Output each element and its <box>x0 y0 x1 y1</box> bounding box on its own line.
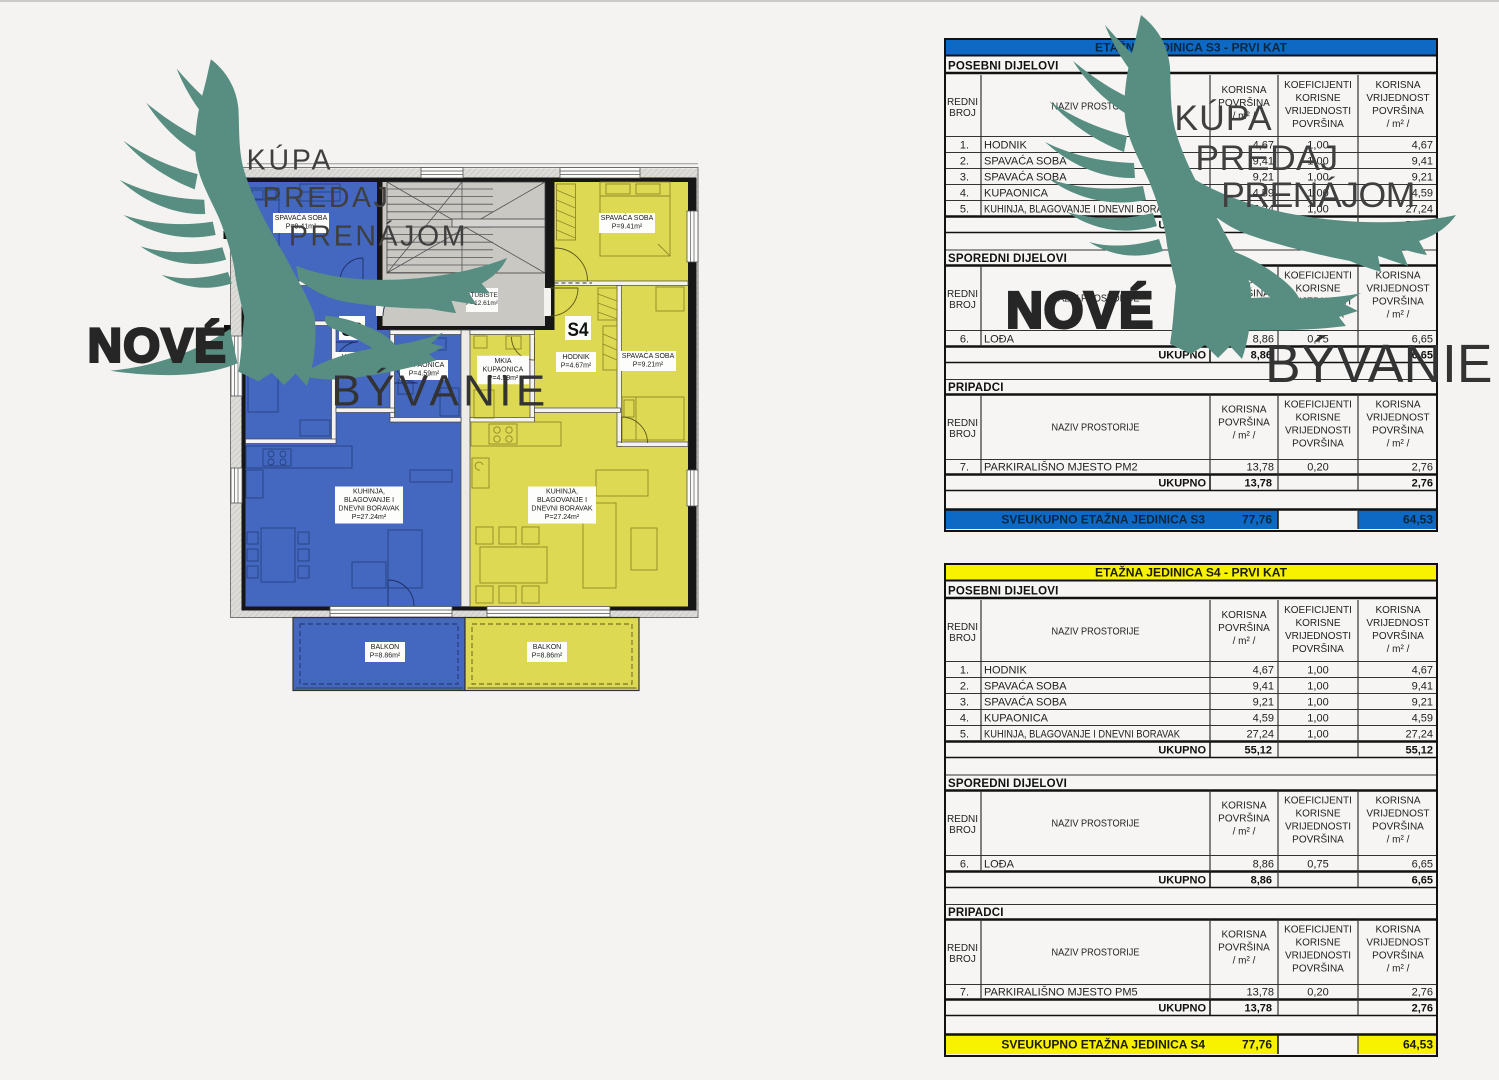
svg-text:PRENÁJOM: PRENÁJOM <box>1221 175 1415 215</box>
svg-text:KÚPA: KÚPA <box>1174 98 1272 138</box>
svg-text:PRENÁJOM: PRENÁJOM <box>289 221 468 253</box>
svg-text:PREDAJ: PREDAJ <box>262 182 390 214</box>
svg-text:BÝVANIE: BÝVANIE <box>331 367 549 416</box>
svg-text:KÚPA: KÚPA <box>247 145 334 177</box>
svg-text:NOVÉ: NOVÉ <box>1006 282 1154 339</box>
svg-text:PREDAJ: PREDAJ <box>1195 138 1338 178</box>
svg-text:BÝVANIE: BÝVANIE <box>1265 335 1492 394</box>
svg-text:NOVÉ: NOVÉ <box>88 319 227 372</box>
